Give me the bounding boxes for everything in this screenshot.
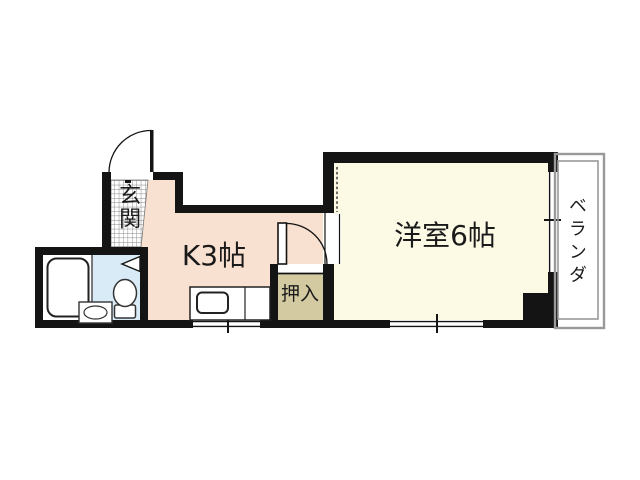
kitchen-top-wall bbox=[175, 205, 334, 213]
kitchen-counter bbox=[190, 287, 270, 320]
bottom-wall-left bbox=[35, 320, 193, 328]
western-room-left-wall-upper bbox=[323, 163, 334, 213]
kitchen-label: K3帖 bbox=[154, 241, 274, 270]
wash-basin-bowl bbox=[84, 306, 107, 319]
bottom-wall-right bbox=[483, 320, 523, 328]
entrance-left-wall bbox=[102, 172, 111, 255]
western-room-right-wall-mid bbox=[548, 272, 558, 293]
bottom-wall-middle bbox=[260, 320, 390, 328]
toilet-bowl bbox=[114, 280, 137, 307]
corner-pillar bbox=[523, 293, 558, 328]
bathroom-left-wall bbox=[35, 247, 43, 328]
western-room-top-wall bbox=[323, 152, 558, 163]
closet-threshold bbox=[278, 264, 323, 274]
balcony-label: ベランダ bbox=[566, 196, 585, 288]
bathroom-kitchen-divider-wall bbox=[140, 247, 148, 328]
bathroom-top-wall bbox=[35, 247, 148, 255]
entrance-swing-door bbox=[109, 130, 154, 173]
floorplan-canvas: 玄関 K3帖 洋室6帖 押入 ベランダ bbox=[0, 0, 640, 480]
western-room-right-wall-top bbox=[548, 163, 558, 172]
kitchen-sink bbox=[197, 293, 228, 314]
entrance-label: 玄関 bbox=[116, 183, 139, 231]
western-room-label: 洋室6帖 bbox=[345, 221, 545, 250]
closet-label: 押入 bbox=[270, 285, 330, 305]
